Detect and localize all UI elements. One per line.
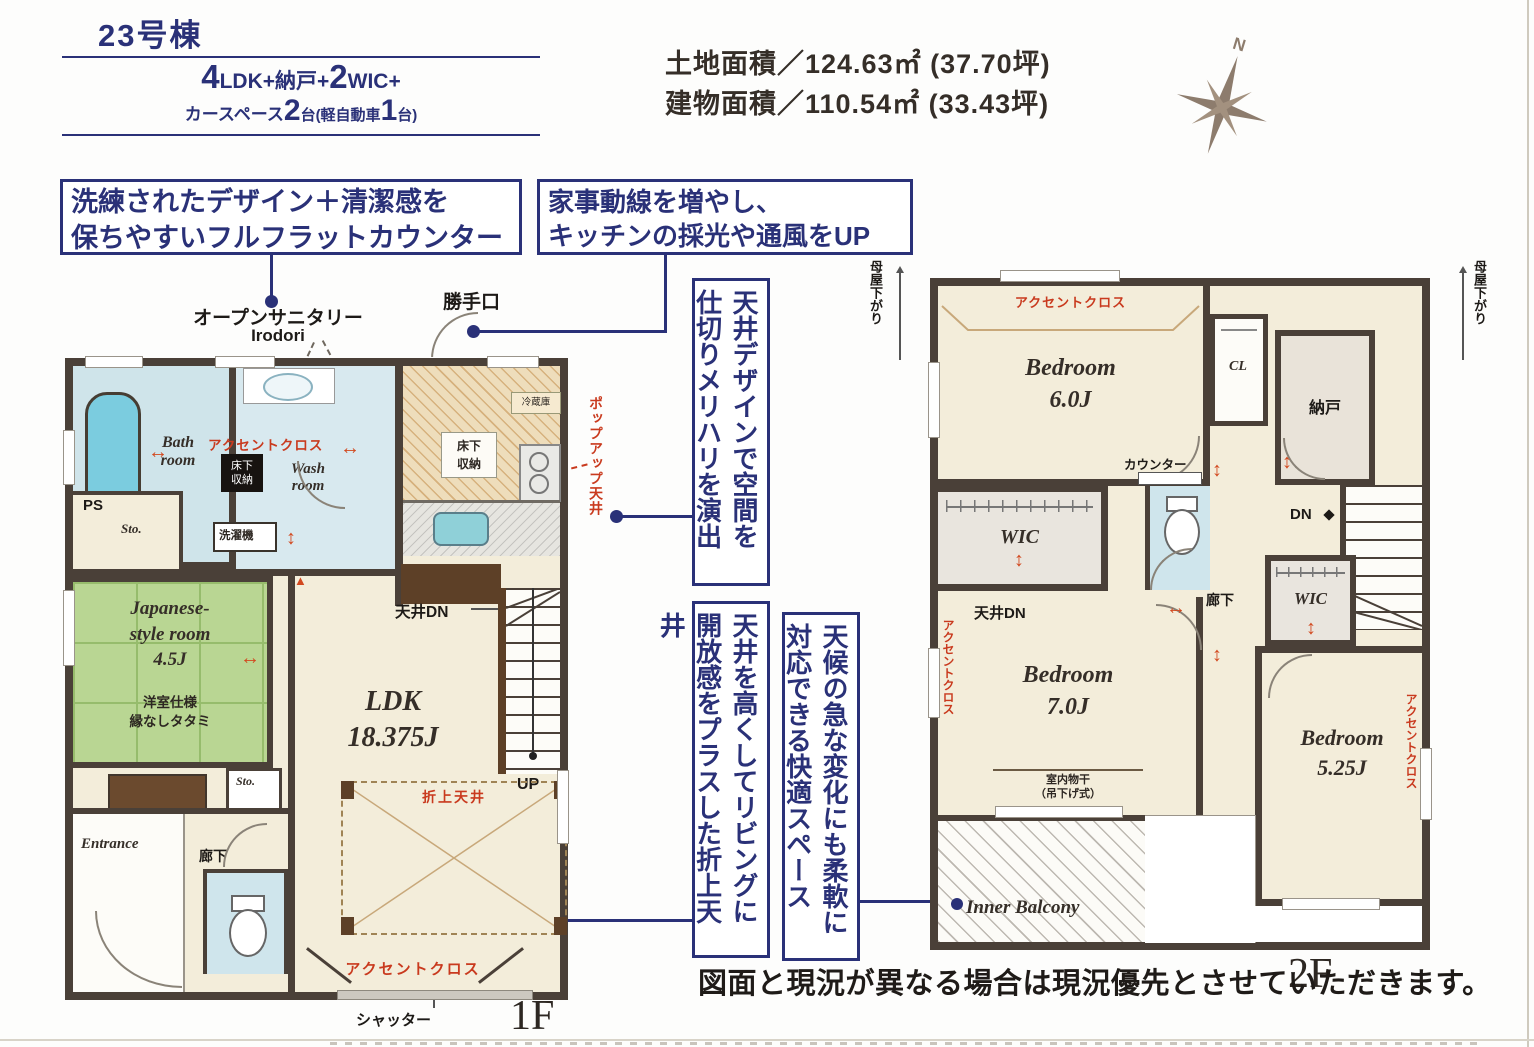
floorplan-sheet: 23号棟 4LDK+納戸+2WIC+ カースペース2台(軽自動車1台) 土地面積…	[0, 0, 1534, 1047]
compass-n-label: N	[1231, 34, 1248, 56]
leader-kitchen-h	[478, 330, 667, 333]
underfloor-storage-wash: 床下 収納	[221, 454, 263, 492]
wic-1: WIC	[938, 485, 1108, 591]
wic1-label: WIC	[938, 526, 1101, 549]
bedroom-525-label: Bedroom 5.25J	[1267, 723, 1417, 782]
accent-cross-1f-bottom: アクセントクロス	[293, 958, 533, 979]
land-area: 土地面積／124.63㎡ (37.70坪)	[665, 42, 1051, 81]
leader-counter	[270, 255, 273, 299]
move-arrow-icon: ↕	[1282, 452, 1292, 472]
compass-rose: N	[1158, 22, 1288, 162]
window-2f-bed7-left	[928, 648, 940, 718]
window-1f-jroom-left	[63, 590, 75, 666]
floor1-label: 1F	[510, 992, 554, 1040]
accent-cross-wash: アクセントクロス	[208, 434, 393, 454]
japanese-room: Japanese- style room 4.5J 洋室仕様 縁なしタタミ	[73, 576, 273, 768]
cutoff-text-row	[330, 1042, 1480, 1045]
kitchen-door-label: 勝手口	[443, 287, 500, 314]
leader-ceiling-h	[622, 515, 692, 518]
window-2f-bed6-left	[928, 362, 940, 438]
washer-label: 洗濯機	[219, 527, 254, 543]
oriage-post-br	[554, 917, 567, 935]
entrance-label: Entrance	[81, 836, 139, 853]
callout-ceiling-design: 天井デザインで空間を 仕切りメリハリを演出	[692, 278, 770, 586]
vanity-bowl	[263, 373, 313, 401]
moya-left-arrowhead	[896, 262, 904, 273]
nando-label: 納戸	[1281, 394, 1369, 418]
cl-rail	[1221, 329, 1257, 331]
counter-ledge	[401, 564, 501, 604]
oriage-label: 折上天井	[343, 787, 565, 807]
move-arrow-icon: ↕	[1306, 618, 1316, 638]
wic2-label: WIC	[1271, 589, 1350, 609]
move-arrow-icon: ↕	[1014, 550, 1024, 570]
callout-flat-counter: 洗練されたデザイン＋清潔感を 保ちやすいフルフラットカウンター	[60, 179, 522, 255]
disclaimer: 図面と現況が異なる場合は現況優先とさせていただきます。	[698, 960, 1492, 1002]
inner-balcony: Inner Balcony	[938, 815, 1145, 942]
move-arrow-icon: ↔	[240, 648, 260, 668]
plan-summary-line2: カースペース2台(軽自動車1台)	[62, 94, 540, 128]
sto1-label: Sto.	[121, 521, 142, 537]
toilet-1f	[203, 869, 288, 974]
japanese-room-label: Japanese- style room 4.5J	[73, 596, 267, 673]
open-sanitary-sub: Irodori	[183, 326, 373, 346]
window-1f-bath-top	[85, 356, 143, 368]
moya-right-line	[1462, 270, 1464, 360]
moya-right-arrowhead	[1459, 262, 1467, 273]
monohoshi-rod	[993, 769, 1143, 771]
move-arrow-icon: ▲	[294, 574, 307, 587]
toilet-1f-door-arc	[223, 823, 267, 867]
floorplan-1f: Bath room アクセントクロス 床下 収納 Wash room 洗濯機 P…	[65, 358, 568, 1000]
window-2f-bed7-balcony	[995, 806, 1123, 818]
shutter-tick	[433, 1000, 435, 1008]
stove	[519, 444, 561, 502]
accent-cross-2f-right: アクセントクロス	[1403, 693, 1420, 873]
dn-diamond	[1323, 509, 1334, 520]
stairs-1f	[498, 588, 560, 774]
kitchen-sink	[433, 512, 489, 546]
wic1-hangers	[946, 500, 1093, 512]
moya-sagari-left: 母屋下がり	[866, 260, 885, 360]
bedroom-7-label: Bedroom 7.0J	[963, 659, 1173, 724]
move-arrow-icon: ↔	[1166, 598, 1186, 618]
counter-2f	[1138, 472, 1202, 485]
window-1f-ldk-right	[557, 770, 569, 844]
ceiling-dn-tick	[471, 608, 501, 610]
inner-balcony-dot	[951, 898, 963, 910]
stair-rail	[532, 588, 534, 756]
moya-left-line	[899, 270, 901, 360]
oriage-post-bl	[341, 917, 354, 935]
header-rule-bottom	[62, 134, 540, 136]
wall-left-column	[288, 569, 295, 992]
callout-inner-balcony: 天候の急な変化にも柔軟に 対応できる快適スペース	[782, 612, 860, 961]
building-area: 建物面積／110.54㎡ (33.43坪)	[665, 82, 1049, 121]
burner-1	[529, 452, 549, 472]
page-edge-right	[1527, 0, 1529, 1047]
ps-label: PS	[83, 497, 103, 514]
move-arrow-icon: ↕	[1212, 460, 1222, 480]
leader-kitchen-v	[664, 255, 667, 332]
counter-2f-label: カウンター	[1124, 454, 1187, 473]
roof-area-right	[1145, 815, 1256, 943]
kitchen-door-arc	[431, 312, 478, 359]
fridge: 冷蔵庫	[511, 392, 561, 414]
shutter-label: シャッター	[356, 1009, 431, 1030]
monohoshi-label: 室内物干 （吊下げ式）	[953, 773, 1183, 802]
burner-2	[529, 474, 549, 494]
ldk-label: LDK 18.375J	[303, 684, 483, 757]
window-2f-bed6-top	[1000, 270, 1120, 282]
plan-num: 4	[201, 58, 219, 95]
sto2-label: Sto.	[236, 774, 255, 789]
cl-label: CL	[1229, 359, 1247, 375]
wic2-rail	[1276, 572, 1345, 574]
tatami-note: 洋室仕様 縁なしタタミ	[73, 694, 267, 732]
callout-kitchen-light: 家事動線を増やし、 キッチンの採光や通風をUP	[537, 179, 913, 255]
plan-summary-line1: 4LDK+納戸+2WIC+	[62, 58, 540, 96]
page-edge-bottom	[0, 1039, 1534, 1041]
move-arrow-icon: ↔	[148, 442, 168, 462]
window-2f-bed525-right	[1420, 748, 1432, 820]
wall-sanitary-bottom	[73, 569, 403, 576]
closet-cl: CL	[1210, 314, 1268, 426]
bedroom-6-label: Bedroom 6.0J	[968, 352, 1173, 417]
window-1f-kitchen-top	[487, 356, 539, 368]
popup-ceiling-label: ポップアップ天井	[586, 396, 606, 564]
dn-label: DN	[1290, 506, 1312, 523]
oriage-ceiling-box: 折上天井	[341, 781, 567, 935]
move-arrow-icon: ↕	[1212, 645, 1222, 665]
stair-rail-dot	[529, 752, 537, 760]
underfloor-storage-kitchen: 床下 収納	[441, 432, 497, 478]
move-arrow-icon: ↔	[340, 438, 360, 458]
shutter-bar	[337, 990, 533, 1000]
window-1f-sanitary-top	[215, 356, 275, 368]
hallway-2f-label: 廊下	[1206, 590, 1234, 610]
closet-brown	[108, 774, 207, 812]
building-number: 23号棟	[98, 10, 202, 55]
toilet-bowl	[229, 909, 267, 957]
ceiling-dn-1f: 天井DN	[395, 600, 448, 622]
inner-balcony-label: Inner Balcony	[966, 897, 1080, 919]
moya-sagari-right: 母屋下がり	[1470, 260, 1489, 360]
move-arrow-icon: ↕	[286, 528, 296, 548]
window-1f-bath-left	[63, 430, 75, 485]
callout-oriage-ceiling: 天井を高くしてリビングに 開放感をプラスした折上天井	[692, 601, 770, 958]
window-2f-bed525-bottom	[1282, 898, 1380, 910]
leader-ceiling-dot	[610, 510, 623, 523]
roof-area-bottom	[1255, 906, 1422, 942]
